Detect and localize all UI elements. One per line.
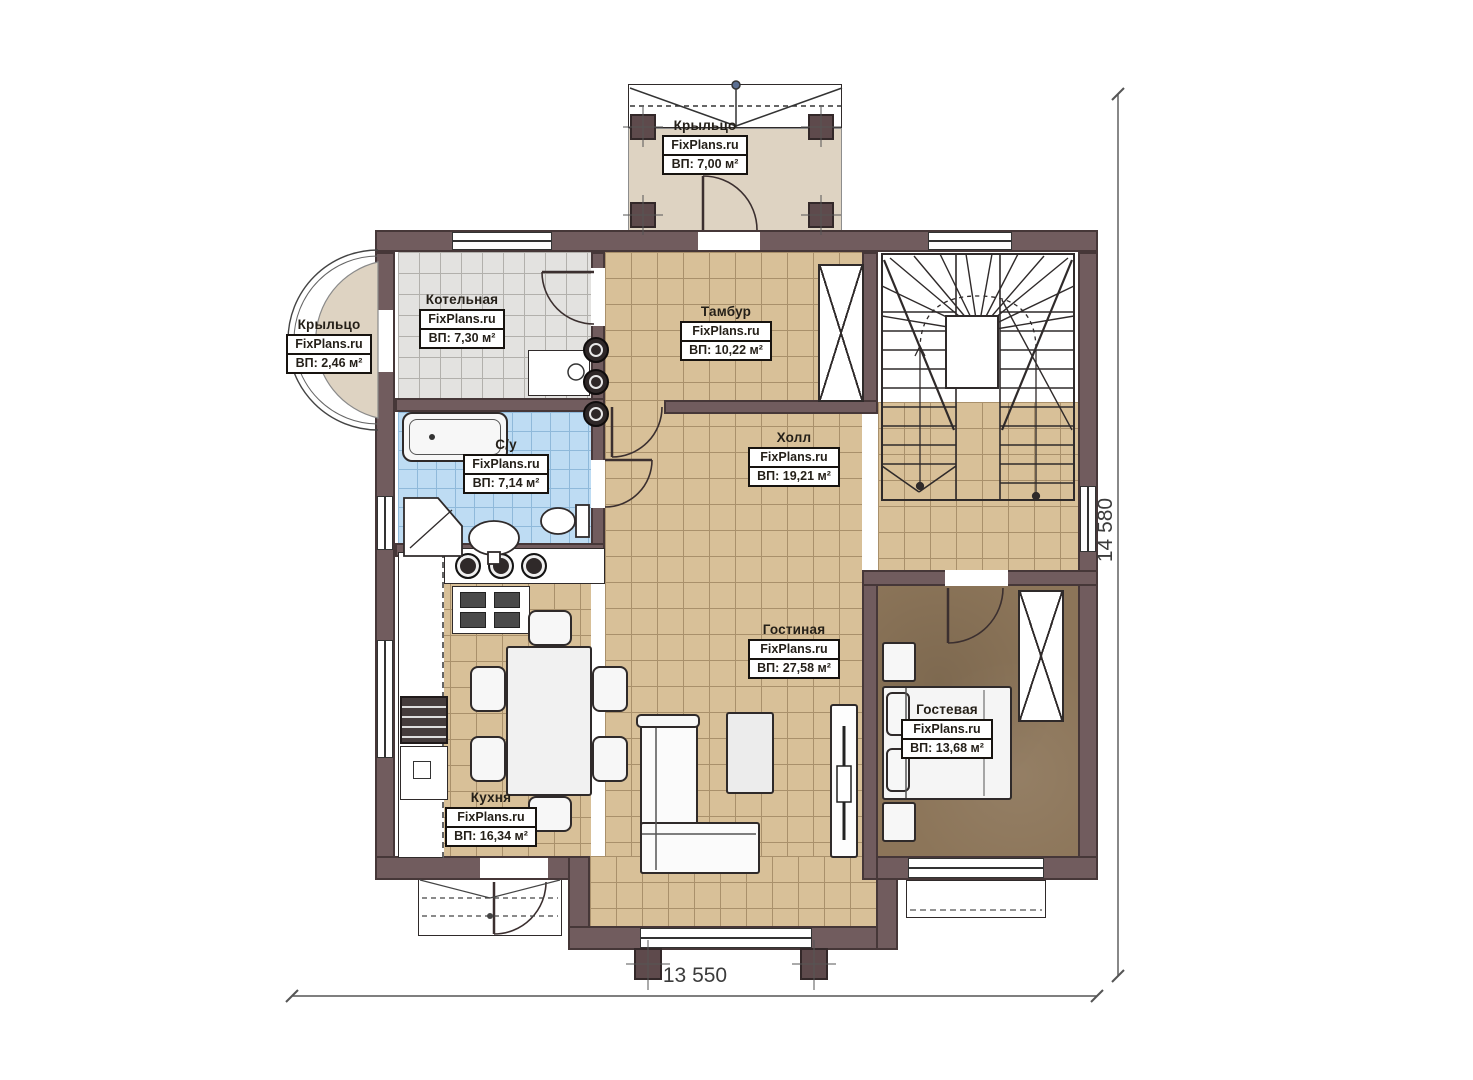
window-glass-line [384,497,386,549]
floor-hall-right [878,402,1078,570]
window-bathroom-left [377,496,393,550]
room-name: Тамбур [660,304,792,319]
room-info-box: FixPlans.ru ВП: 16,34 м² [445,807,537,847]
guest-door-opening [945,570,1008,586]
room-label-porch-left: Крыльцо FixPlans.ru ВП: 2,46 м² [268,317,390,374]
room-info-box: FixPlans.ru ВП: 10,22 м² [680,321,772,361]
room-area: ВП: 10,22 м² [682,340,770,359]
window-glass-line [384,641,386,757]
wall-living-guest [862,570,878,880]
room-area: ВП: 2,46 м² [288,353,369,372]
kitchen-sink [413,761,431,779]
dining-table [506,646,592,796]
sofa-armrest [636,714,700,728]
room-label-kitchen: Кухня FixPlans.ru ВП: 16,34 м² [428,790,554,847]
room-label-vestibule: Тамбур FixPlans.ru ВП: 10,22 м² [660,304,792,361]
window-boiler-top [452,232,552,250]
room-label-hall: Холл FixPlans.ru ВП: 19,21 м² [728,430,860,487]
dimension-height-label: 14 580 [1094,475,1118,585]
room-label-living: Гостиная FixPlans.ru ВП: 27,58 м² [726,622,862,679]
stove-burner-cell [460,592,486,608]
room-name: Крыльцо [638,118,772,133]
room-name: С/у [450,437,562,452]
room-info-box: FixPlans.ru ВП: 13,68 м² [901,719,993,759]
stove [452,586,530,634]
wall-vestibule-stairs [862,252,878,402]
room-area: ВП: 27,58 м² [750,658,838,677]
room-name: Холл [728,430,860,445]
room-area: ВП: 13,68 м² [903,738,991,757]
tv-console [830,704,858,858]
room-area: ВП: 7,30 м² [421,328,502,347]
window-kitchen-left [377,640,393,758]
room-info-box: FixPlans.ru ВП: 19,21 м² [748,447,840,487]
wall-boiler-bathroom [395,398,605,412]
porch-post-ne [808,114,834,140]
hob-burner-2 [488,553,514,579]
watermark: FixPlans.ru [465,456,546,473]
bay-post-right [800,948,828,980]
stove-burner-cell [494,612,520,628]
watermark: FixPlans.ru [750,641,838,658]
sofa-section-horizontal [640,822,760,874]
watermark: FixPlans.ru [682,323,770,340]
window-glass-line [641,937,811,939]
room-label-boiler: Котельная FixPlans.ru ВП: 7,30 м² [400,292,524,349]
dimension-width-label: 13 550 [595,964,795,988]
room-name: Гостевая [880,702,1014,717]
room-area: ВП: 19,21 м² [750,466,838,485]
entrance-door-opening [698,232,760,250]
room-info-box: FixPlans.ru ВП: 7,30 м² [419,309,504,349]
window-living-bay [640,928,812,948]
guest-window-sill [906,880,1046,918]
window-guest-bottom [908,858,1044,878]
room-info-box: FixPlans.ru ВП: 2,46 м² [286,334,371,374]
floor-plan: Крыльцо FixPlans.ru ВП: 7,00 м² Крыльцо … [0,0,1473,1080]
porch-post-se [808,202,834,228]
room-label-porch-top: Крыльцо FixPlans.ru ВП: 7,00 м² [638,118,772,175]
refrigerator [400,696,448,744]
watermark: FixPlans.ru [903,721,991,738]
window-glass-line [929,240,1011,242]
bathroom-door-opening [591,460,605,508]
room-area: ВП: 7,14 м² [465,473,546,492]
room-area: ВП: 7,00 м² [664,154,745,173]
stove-burner-cell [494,592,520,608]
watermark: FixPlans.ru [750,449,838,466]
vestibule-wardrobe [818,264,864,402]
dining-chair-right-2 [592,736,628,782]
dining-chair-right-1 [592,666,628,712]
window-glass-line [453,240,551,242]
dining-chair-left-2 [470,736,506,782]
stove-burner-cell [460,612,486,628]
room-info-box: FixPlans.ru ВП: 7,00 м² [662,135,747,175]
hob-burner-3 [521,553,547,579]
dining-chair-top [528,610,572,646]
room-name: Кухня [428,790,554,805]
room-name: Котельная [400,292,524,307]
room-info-box: FixPlans.ru ВП: 7,14 м² [463,454,548,494]
floor-stairwell [878,252,1078,402]
watermark: FixPlans.ru [288,336,369,353]
kitchen-exit-steps [418,878,562,936]
boiler-door-opening [591,268,605,326]
room-info-box: FixPlans.ru ВП: 27,58 м² [748,639,840,679]
hob-burner-1 [455,553,481,579]
nightstand-top [882,642,916,682]
boiler-unit [528,350,590,396]
room-label-bathroom: С/у FixPlans.ru ВП: 7,14 м² [450,437,562,494]
room-label-guest: Гостевая FixPlans.ru ВП: 13,68 м² [880,702,1014,759]
dining-chair-left-1 [470,666,506,712]
window-glass-line [1087,487,1089,551]
coffee-table [726,712,774,794]
watermark: FixPlans.ru [421,311,502,328]
porch-post-sw [630,202,656,228]
room-name: Крыльцо [268,317,390,332]
watermark: FixPlans.ru [664,137,745,154]
kitchen-exit-opening [480,858,548,878]
nightstand-bottom [882,802,916,842]
watermark: FixPlans.ru [447,809,535,826]
window-glass-line [909,867,1043,869]
room-area: ВП: 16,34 м² [447,826,535,845]
room-name: Гостиная [726,622,862,637]
wall-vestibule-hall [664,400,878,414]
window-stairs-top [928,232,1012,250]
guest-wardrobe [1018,590,1064,722]
